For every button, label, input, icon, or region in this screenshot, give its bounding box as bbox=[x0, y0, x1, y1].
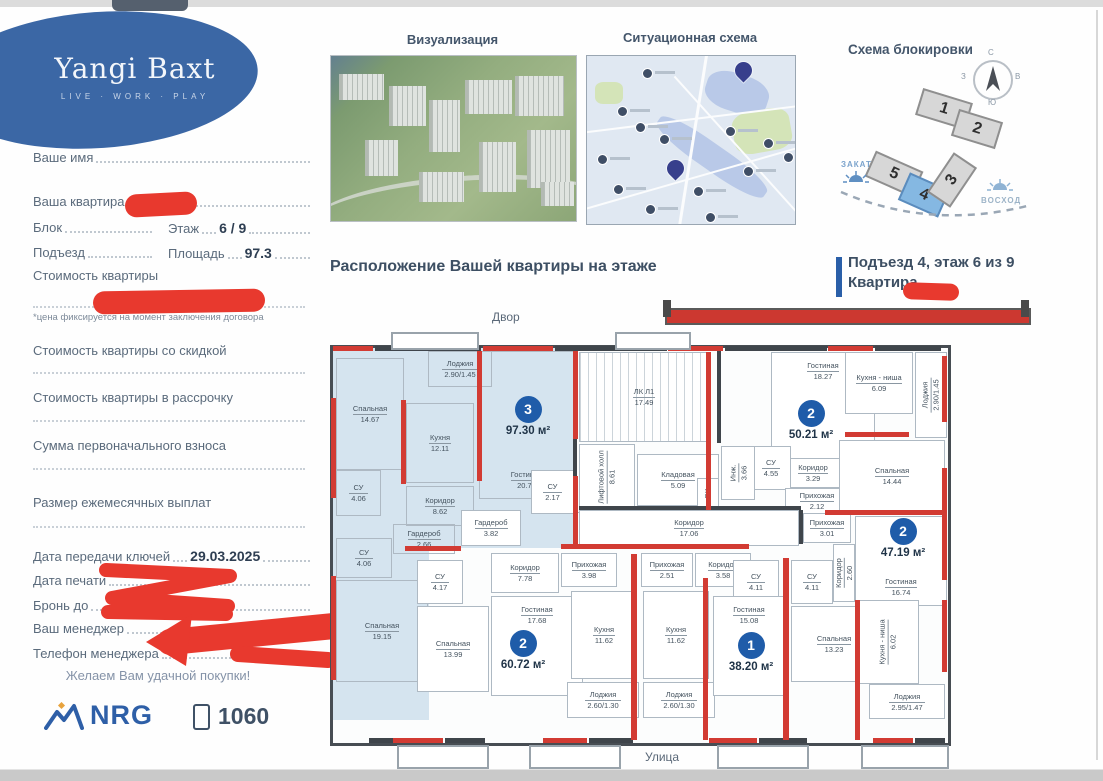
room-Прихожая: Прихожая3.98 bbox=[561, 553, 617, 587]
wall-red bbox=[845, 432, 909, 437]
nrg-text: NRG bbox=[90, 700, 153, 731]
map-marker-icon bbox=[617, 106, 628, 117]
field-name-label: Ваше имя bbox=[33, 150, 93, 165]
room-СУ: СУ2.17 bbox=[531, 470, 574, 514]
room-label: Гостиная15.08 bbox=[733, 605, 764, 625]
dotted-line bbox=[127, 632, 310, 634]
yard-label: Двор bbox=[492, 310, 520, 324]
wall-red bbox=[706, 352, 711, 510]
dotted-line bbox=[33, 526, 305, 528]
room-Коридор: Коридор2.60 bbox=[833, 544, 855, 602]
field-area: Площадь97.3 bbox=[168, 245, 313, 261]
field-apartment-label: Ваша квартира bbox=[33, 194, 124, 209]
building bbox=[389, 86, 426, 126]
compass-east: В bbox=[1015, 72, 1020, 81]
room-label: Лифтовой холл8.61 bbox=[597, 450, 617, 503]
field-monthly: Размер ежемесячных выплат bbox=[33, 495, 313, 510]
wall bbox=[573, 439, 577, 479]
field-entrance-label: Подъезд bbox=[33, 245, 85, 260]
apartment-number: 2 bbox=[890, 518, 917, 545]
field-down-payment-label: Сумма первоначального взноса bbox=[33, 438, 226, 453]
photo-edge-right bbox=[1096, 10, 1098, 760]
room-СУ: СУ4.06 bbox=[336, 470, 381, 516]
room-Лоджия: Лоджия2.95/1.47 bbox=[869, 684, 945, 719]
field-down-payment: Сумма первоначального взноса bbox=[33, 438, 313, 453]
map-marker-label bbox=[648, 125, 668, 128]
room-label: СУ2.17 bbox=[543, 482, 562, 502]
field-price-discount: Стоимость квартиры со скидкой bbox=[33, 343, 313, 358]
field-print-date: Дата печати bbox=[33, 573, 313, 588]
room-label: Спальная14.67 bbox=[353, 404, 387, 424]
wall-red bbox=[709, 738, 757, 743]
compass-south: Ю bbox=[988, 98, 996, 107]
floor-plan: Лоджия2.90/1.45Спальная14.67Кухня12.11Го… bbox=[330, 345, 951, 746]
wall-red bbox=[333, 346, 373, 351]
map-marker-label bbox=[776, 141, 796, 144]
apartment-area: 60.72 м² bbox=[491, 659, 555, 671]
room-Кухня: Кухня11.62 bbox=[643, 591, 709, 679]
wall-red bbox=[483, 346, 553, 351]
building bbox=[339, 74, 384, 100]
situational-title: Ситуационная схема bbox=[586, 30, 794, 45]
wall-red bbox=[543, 738, 587, 743]
page: Yangi Baxt LIVE · WORK · PLAY Ваше имя В… bbox=[0, 0, 1103, 781]
wall-red bbox=[631, 554, 637, 740]
room-label: Коридор2.60 bbox=[834, 558, 854, 588]
room-label: Спальная13.23 bbox=[817, 634, 851, 654]
room-label: Коридор17.06 bbox=[674, 518, 704, 538]
room-label: Кухня11.62 bbox=[593, 625, 615, 645]
entrance-line: Подъезд 4, этаж 6 из 9 bbox=[848, 253, 1014, 273]
room-Коридор: Коридор17.06 bbox=[579, 510, 799, 546]
map-park bbox=[595, 82, 623, 104]
dotted-line bbox=[65, 231, 152, 233]
field-monthly-label: Размер ежемесячных выплат bbox=[33, 495, 211, 510]
building bbox=[429, 100, 460, 152]
visualization-title: Визуализация bbox=[330, 32, 575, 47]
dotted-line bbox=[263, 560, 310, 562]
room-label: Коридор3.29 bbox=[798, 463, 828, 483]
room-label: Лоджия2.60/1.30 bbox=[661, 690, 696, 710]
brand-name: Yangi Baxt bbox=[10, 52, 260, 85]
dotted-line bbox=[173, 560, 187, 562]
field-price-installment-label: Стоимость квартиры в рассрочку bbox=[33, 390, 233, 405]
room-Прихожая: Прихожая2.51 bbox=[641, 553, 693, 587]
room-label: Гостиная16.74 bbox=[885, 577, 916, 597]
field-floor-value: 6 / 9 bbox=[219, 220, 246, 236]
map-pin-icon bbox=[663, 156, 687, 180]
wall-red bbox=[561, 544, 749, 549]
room-label: Лоджия2.60/1.30 bbox=[585, 690, 620, 710]
apartment-area: 50.21 м² bbox=[779, 429, 843, 441]
field-manager: Ваш менеджер bbox=[33, 621, 313, 636]
room-label: Кухня11.62 bbox=[665, 625, 687, 645]
building bbox=[465, 80, 512, 114]
building bbox=[515, 76, 564, 116]
wall bbox=[445, 738, 485, 743]
compass-west: З bbox=[961, 72, 966, 81]
compass-north: С bbox=[988, 48, 994, 57]
balcony-box bbox=[615, 332, 691, 350]
building bbox=[541, 182, 574, 206]
field-manager-label: Ваш менеджер bbox=[33, 621, 124, 636]
room-label: СУ4.11 bbox=[747, 572, 765, 592]
map-marker-label bbox=[655, 71, 675, 74]
field-manager-phone-label: Телефон менеджера bbox=[33, 646, 159, 661]
price-note: *цена фиксируется на момент заключения д… bbox=[33, 312, 264, 323]
room-СУ: СУ4.11 bbox=[791, 560, 833, 604]
field-floor-label: Этаж bbox=[168, 221, 199, 236]
field-area-label: Площадь bbox=[168, 246, 225, 261]
redaction-apartment bbox=[124, 191, 197, 218]
room-Гардероб: Гардероб3.82 bbox=[461, 510, 521, 546]
room-Спальная: Спальная14.44 bbox=[839, 440, 945, 512]
dotted-line bbox=[33, 468, 305, 470]
room-label: Прихожая2.51 bbox=[650, 560, 685, 580]
field-area-value: 97.3 bbox=[245, 245, 272, 261]
field-price-installment: Стоимость квартиры в рассрочку bbox=[33, 390, 313, 405]
room-label: Лоджия2.95/1.47 bbox=[889, 692, 924, 712]
field-print-date-label: Дата печати bbox=[33, 573, 106, 588]
wall-red bbox=[393, 738, 443, 743]
map-marker-icon bbox=[783, 152, 794, 163]
wall-red bbox=[855, 600, 860, 740]
blocking-scheme: С Ю З В 12543 ЗАКАТ ВОСХОД bbox=[835, 30, 1040, 225]
visualization-image bbox=[330, 55, 577, 222]
brand-logo: Yangi Baxt LIVE · WORK · PLAY bbox=[0, 0, 330, 160]
room-Кухня: Кухня11.62 bbox=[571, 591, 637, 679]
dotted-line bbox=[162, 657, 310, 659]
apartment-area: 38.20 м² bbox=[719, 661, 783, 673]
wish-text: Желаем Вам удачной покупки! bbox=[33, 668, 283, 683]
room-label: Гостиная17.68 bbox=[521, 605, 552, 625]
room-label: Гостиная18.27 bbox=[807, 361, 838, 381]
wall-red bbox=[401, 400, 406, 484]
dotted-line bbox=[228, 257, 242, 259]
field-manager-phone: Телефон менеджера bbox=[33, 646, 313, 661]
field-floor: Этаж6 / 9 bbox=[168, 220, 313, 236]
building bbox=[365, 140, 398, 176]
nrg-logo: NRG bbox=[44, 700, 153, 731]
room-label: СУ4.17 bbox=[431, 572, 450, 592]
bar-cap bbox=[1021, 300, 1029, 317]
room-label: Лоджия2.90/1.45 bbox=[921, 377, 941, 412]
map-marker-icon bbox=[645, 204, 656, 215]
reserve-note: не фиксируется bbox=[142, 609, 204, 619]
wall-red bbox=[405, 546, 461, 551]
map-marker-icon bbox=[705, 212, 716, 223]
adjacent-building-outline bbox=[665, 308, 1031, 325]
phone-icon bbox=[193, 704, 210, 730]
wall bbox=[589, 738, 633, 743]
room-label: Спальная14.44 bbox=[875, 466, 909, 486]
map-marker-icon bbox=[635, 122, 646, 133]
room-label: Прихожая2.12 bbox=[800, 491, 835, 511]
field-name: Ваше имя bbox=[33, 150, 313, 165]
wall bbox=[799, 510, 803, 544]
wall bbox=[717, 351, 721, 443]
map-marker-icon bbox=[613, 184, 624, 195]
apartment-area: 97.30 м² bbox=[496, 425, 560, 437]
wall bbox=[725, 346, 827, 351]
balcony-box bbox=[397, 745, 489, 769]
room-label: Коридор8.62 bbox=[425, 496, 455, 516]
room-Коридор: Коридор7.78 bbox=[491, 553, 559, 593]
field-keys-date-value: 29.03.2025 bbox=[190, 548, 260, 564]
field-reserve-label: Бронь до bbox=[33, 598, 88, 613]
room-СУ: СУ4.55 bbox=[751, 446, 791, 490]
balcony-box bbox=[861, 745, 949, 769]
dotted-line bbox=[109, 584, 310, 586]
dotted-line bbox=[249, 232, 310, 234]
compass-icon bbox=[973, 60, 1013, 100]
dotted-line bbox=[33, 372, 305, 374]
room-Прихожая: Прихожая3.01 bbox=[803, 513, 851, 543]
field-block: Блок bbox=[33, 220, 155, 235]
map-marker-label bbox=[658, 207, 678, 210]
apartment-number: 2 bbox=[798, 400, 825, 427]
map-marker-label bbox=[672, 137, 692, 140]
balcony-box bbox=[391, 332, 479, 350]
room-Спальная: Спальная14.67 bbox=[336, 358, 404, 470]
building bbox=[527, 130, 570, 188]
room-Спальная: Спальная19.15 bbox=[336, 580, 428, 682]
sunset-label: ЗАКАТ bbox=[841, 160, 872, 169]
redaction-apartment-number bbox=[903, 282, 960, 301]
room-label: Лоджия2.90/1.45 bbox=[442, 359, 477, 379]
block-2: 2 bbox=[951, 109, 1003, 149]
apartment-number: 1 bbox=[738, 632, 765, 659]
wall bbox=[875, 346, 941, 351]
map-marker-label bbox=[626, 187, 646, 190]
room-СУ: СУ4.17 bbox=[417, 560, 463, 604]
room-label: Кухня - ниша6.02 bbox=[878, 619, 898, 664]
room-label: СУ4.06 bbox=[349, 483, 368, 503]
room-label: СУ4.55 bbox=[762, 458, 781, 478]
field-price-label: Стоимость квартиры bbox=[33, 268, 158, 283]
apartment-area: 47.19 м² bbox=[871, 547, 935, 559]
wall bbox=[915, 738, 945, 743]
entrance-accent-bar bbox=[836, 257, 842, 297]
room-label: СУ4.11 bbox=[803, 572, 821, 592]
field-price: Стоимость квартиры bbox=[33, 268, 313, 283]
redaction-price bbox=[93, 289, 265, 315]
map-marker-icon bbox=[597, 154, 608, 165]
dotted-line bbox=[88, 256, 152, 258]
map-marker-icon bbox=[763, 138, 774, 149]
building bbox=[419, 172, 464, 202]
room-label: СУ4.06 bbox=[355, 548, 374, 568]
dotted-line bbox=[33, 420, 305, 422]
wall-red bbox=[477, 351, 482, 481]
room-Лоджия: Лоджия2.60/1.30 bbox=[567, 682, 639, 718]
wall-red bbox=[942, 600, 947, 672]
phone-block: 1060 bbox=[193, 703, 269, 730]
room-label: Кухня - ниша6.09 bbox=[856, 373, 901, 393]
map-marker-label bbox=[610, 157, 630, 160]
brand-tagline: LIVE · WORK · PLAY bbox=[10, 92, 260, 101]
wall bbox=[579, 506, 801, 510]
wall-red bbox=[942, 468, 947, 580]
phone-number: 1060 bbox=[218, 703, 269, 730]
balcony-box bbox=[529, 745, 621, 769]
room-label: Спальная19.15 bbox=[365, 621, 399, 641]
field-entrance: Подъезд bbox=[33, 245, 155, 260]
wall-red bbox=[783, 558, 789, 740]
room-label: Инж.3.66 bbox=[728, 464, 748, 483]
apartment-number: 3 bbox=[515, 396, 542, 423]
room-label: Кухня12.11 bbox=[429, 433, 451, 453]
wall-red bbox=[573, 476, 578, 546]
wall-red bbox=[942, 356, 947, 422]
room-label: Спальная13.99 bbox=[436, 639, 470, 659]
field-keys-date: Дата передачи ключей29.03.2025 bbox=[33, 548, 313, 564]
field-block-label: Блок bbox=[33, 220, 62, 235]
room-Спальная: Спальная13.99 bbox=[417, 606, 489, 692]
map-marker-icon bbox=[743, 166, 754, 177]
room-СУ: СУ4.06 bbox=[336, 538, 392, 578]
apartment-badge-2: 250.21 м² bbox=[779, 400, 843, 441]
map-marker-icon bbox=[642, 68, 653, 79]
wall-red bbox=[573, 351, 578, 439]
room-Кухня - ниша: Кухня - ниша6.09 bbox=[845, 352, 913, 414]
map-marker-icon bbox=[693, 186, 704, 197]
photo-edge-bottom bbox=[0, 769, 1103, 781]
wall-red bbox=[703, 578, 708, 740]
map-marker-label bbox=[738, 129, 758, 132]
apartment-badge-2: 260.72 м² bbox=[491, 630, 555, 671]
room-label: Прихожая3.01 bbox=[810, 518, 845, 538]
wall-red bbox=[828, 346, 873, 351]
room-label: Коридор7.78 bbox=[510, 563, 540, 583]
map-marker-label bbox=[706, 189, 726, 192]
room-label: Кладовая5.09 bbox=[661, 470, 695, 490]
dotted-line bbox=[96, 161, 310, 163]
room-Кухня - ниша: Кухня - ниша6.02 bbox=[857, 600, 919, 684]
wall bbox=[369, 738, 395, 743]
wall-red bbox=[331, 576, 336, 680]
room-label: ЛК Л117.49 bbox=[633, 387, 656, 407]
map-marker-label bbox=[630, 109, 650, 112]
dotted-line bbox=[202, 232, 216, 234]
wall-red bbox=[825, 510, 945, 515]
mountain-icon bbox=[44, 702, 84, 730]
room-ЛК Л1: ЛК Л117.49 bbox=[579, 352, 709, 442]
apartment-badge-3: 397.30 м² bbox=[496, 396, 560, 437]
apartment-number: 2 bbox=[510, 630, 537, 657]
location-heading: Расположение Вашей квартиры на этаже bbox=[330, 258, 657, 276]
site-arc bbox=[835, 178, 1035, 224]
room-Кухня: Кухня12.11 bbox=[406, 403, 474, 483]
building bbox=[479, 142, 516, 192]
room-Лифтовой холл: Лифтовой холл8.61 bbox=[579, 444, 635, 510]
apartment-badge-1: 138.20 м² bbox=[719, 632, 783, 673]
map-marker-icon bbox=[659, 134, 670, 145]
field-price-discount-label: Стоимость квартиры со скидкой bbox=[33, 343, 227, 358]
map-marker-label bbox=[756, 169, 776, 172]
apartment-badge-2: 247.19 м² bbox=[871, 518, 935, 559]
field-keys-date-label: Дата передачи ключей bbox=[33, 549, 170, 564]
map-marker-label bbox=[718, 215, 738, 218]
wall-red bbox=[873, 738, 913, 743]
dotted-line bbox=[275, 257, 310, 259]
situational-map bbox=[586, 55, 796, 225]
room-label: Прихожая3.98 bbox=[572, 560, 607, 580]
street-label: Улица bbox=[645, 750, 679, 764]
bar-cap bbox=[663, 300, 671, 317]
wall-red bbox=[331, 398, 336, 498]
balcony-box bbox=[717, 745, 809, 769]
room-label: Гардероб3.82 bbox=[475, 518, 508, 538]
room-Инж.: Инж.3.66 bbox=[721, 446, 755, 500]
map-marker-icon bbox=[725, 126, 736, 137]
